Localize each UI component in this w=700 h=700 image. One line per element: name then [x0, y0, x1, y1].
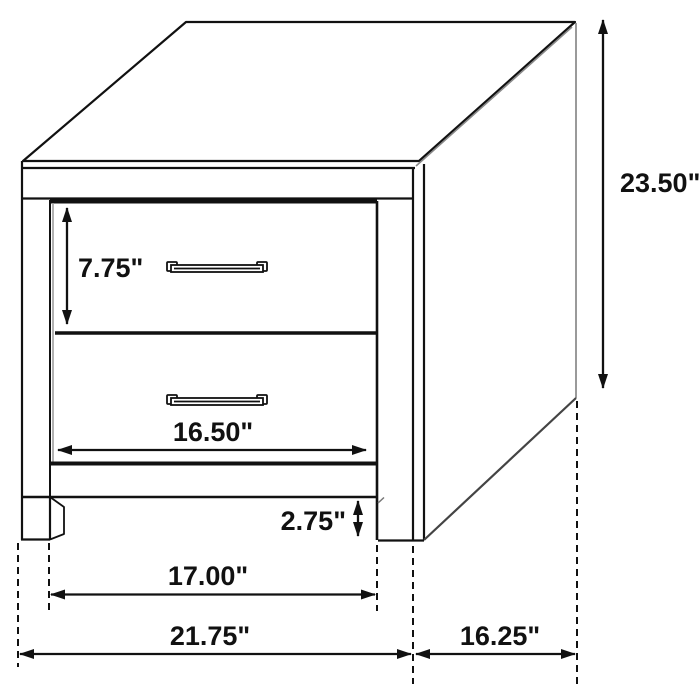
dimension-base-clearance: 2.75"	[281, 501, 358, 536]
front-frame	[22, 161, 413, 540]
dimension-overall-height: 23.50"	[603, 20, 700, 388]
dimension-leg-span: 17.00"	[51, 561, 375, 595]
right-leg	[378, 498, 424, 541]
dim-label-drawer-height: 7.75"	[78, 253, 143, 283]
dim-label-overall-depth: 16.25"	[460, 621, 540, 651]
dim-label-leg-span: 17.00"	[168, 561, 248, 591]
dim-label-drawer-width: 16.50"	[173, 417, 253, 447]
right-leg-chamfer	[378, 498, 384, 504]
dimension-drawer-width: 16.50"	[58, 417, 366, 450]
side-panel-bottom-edge	[424, 398, 576, 540]
left-leg-inner-facet	[50, 497, 64, 540]
diagram-canvas: 23.50" 7.75" 16.50" 2.75" 17.00" 21.75" …	[0, 0, 700, 700]
dim-label-base-clearance: 2.75"	[281, 506, 346, 536]
left-leg	[21, 497, 64, 540]
drawer-1-handle	[167, 262, 267, 272]
dim-label-overall-height: 23.50"	[620, 168, 700, 198]
nightstand-dimension-diagram: 23.50" 7.75" 16.50" 2.75" 17.00" 21.75" …	[0, 0, 700, 700]
drawer-2-handle	[167, 395, 267, 405]
dimension-overall-depth: 16.25"	[416, 621, 575, 654]
top-panel	[23, 22, 575, 168]
dimension-overall-width: 21.75"	[20, 621, 411, 654]
dimension-drawer-height: 7.75"	[67, 208, 143, 324]
dim-label-overall-width: 21.75"	[170, 621, 250, 651]
